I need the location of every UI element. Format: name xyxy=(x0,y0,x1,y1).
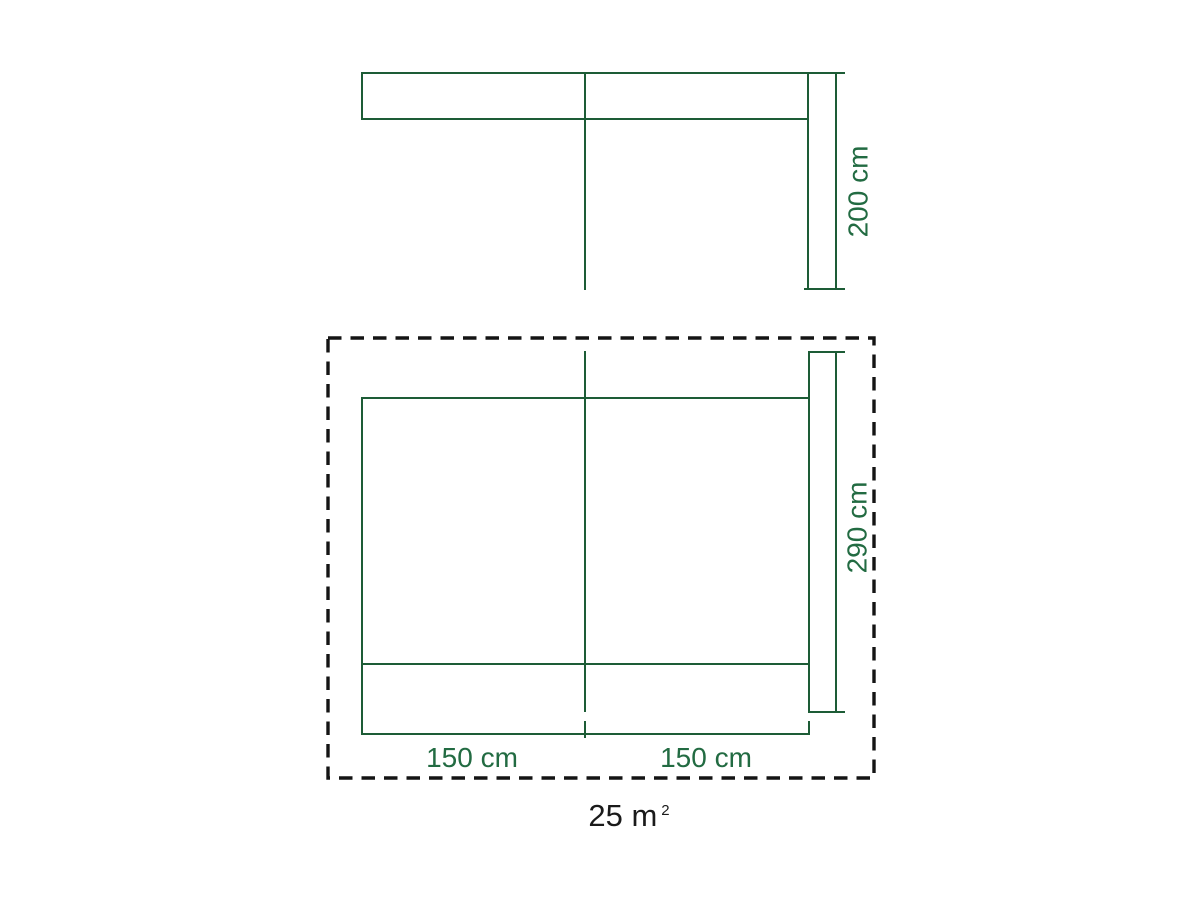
panel-right-top-extension-line xyxy=(808,351,810,397)
dimension-diagram: 200 cm 290 cm 150 cm 150 cm 25 m2 xyxy=(0,0,1200,900)
height-dimension-top-tick xyxy=(806,72,845,74)
width-dimension-center-tick xyxy=(584,721,586,738)
depth-dimension-label: 290 cm xyxy=(843,453,872,603)
total-area-value: 25 m xyxy=(588,798,657,833)
width-dimension-left-tick xyxy=(361,721,363,735)
height-dimension-label: 200 cm xyxy=(844,117,873,267)
depth-dimension-line xyxy=(835,351,837,713)
width-dimension-right-tick xyxy=(808,721,810,735)
height-dimension-line xyxy=(835,72,837,290)
height-dimension-bottom-tick xyxy=(804,288,845,290)
depth-dimension-top-tick xyxy=(808,351,845,353)
panel-right-bottom-extension-line xyxy=(808,665,810,713)
total-area-label: 25 m2 xyxy=(544,798,714,834)
panel-center-divider-line xyxy=(584,351,586,712)
front-center-post-line xyxy=(584,72,586,290)
right-width-dimension-label: 150 cm xyxy=(631,743,781,772)
depth-dimension-bottom-tick xyxy=(808,711,845,713)
total-area-superscript: 2 xyxy=(661,802,669,819)
front-right-post-line xyxy=(807,120,809,290)
left-width-dimension-label: 150 cm xyxy=(397,743,547,772)
